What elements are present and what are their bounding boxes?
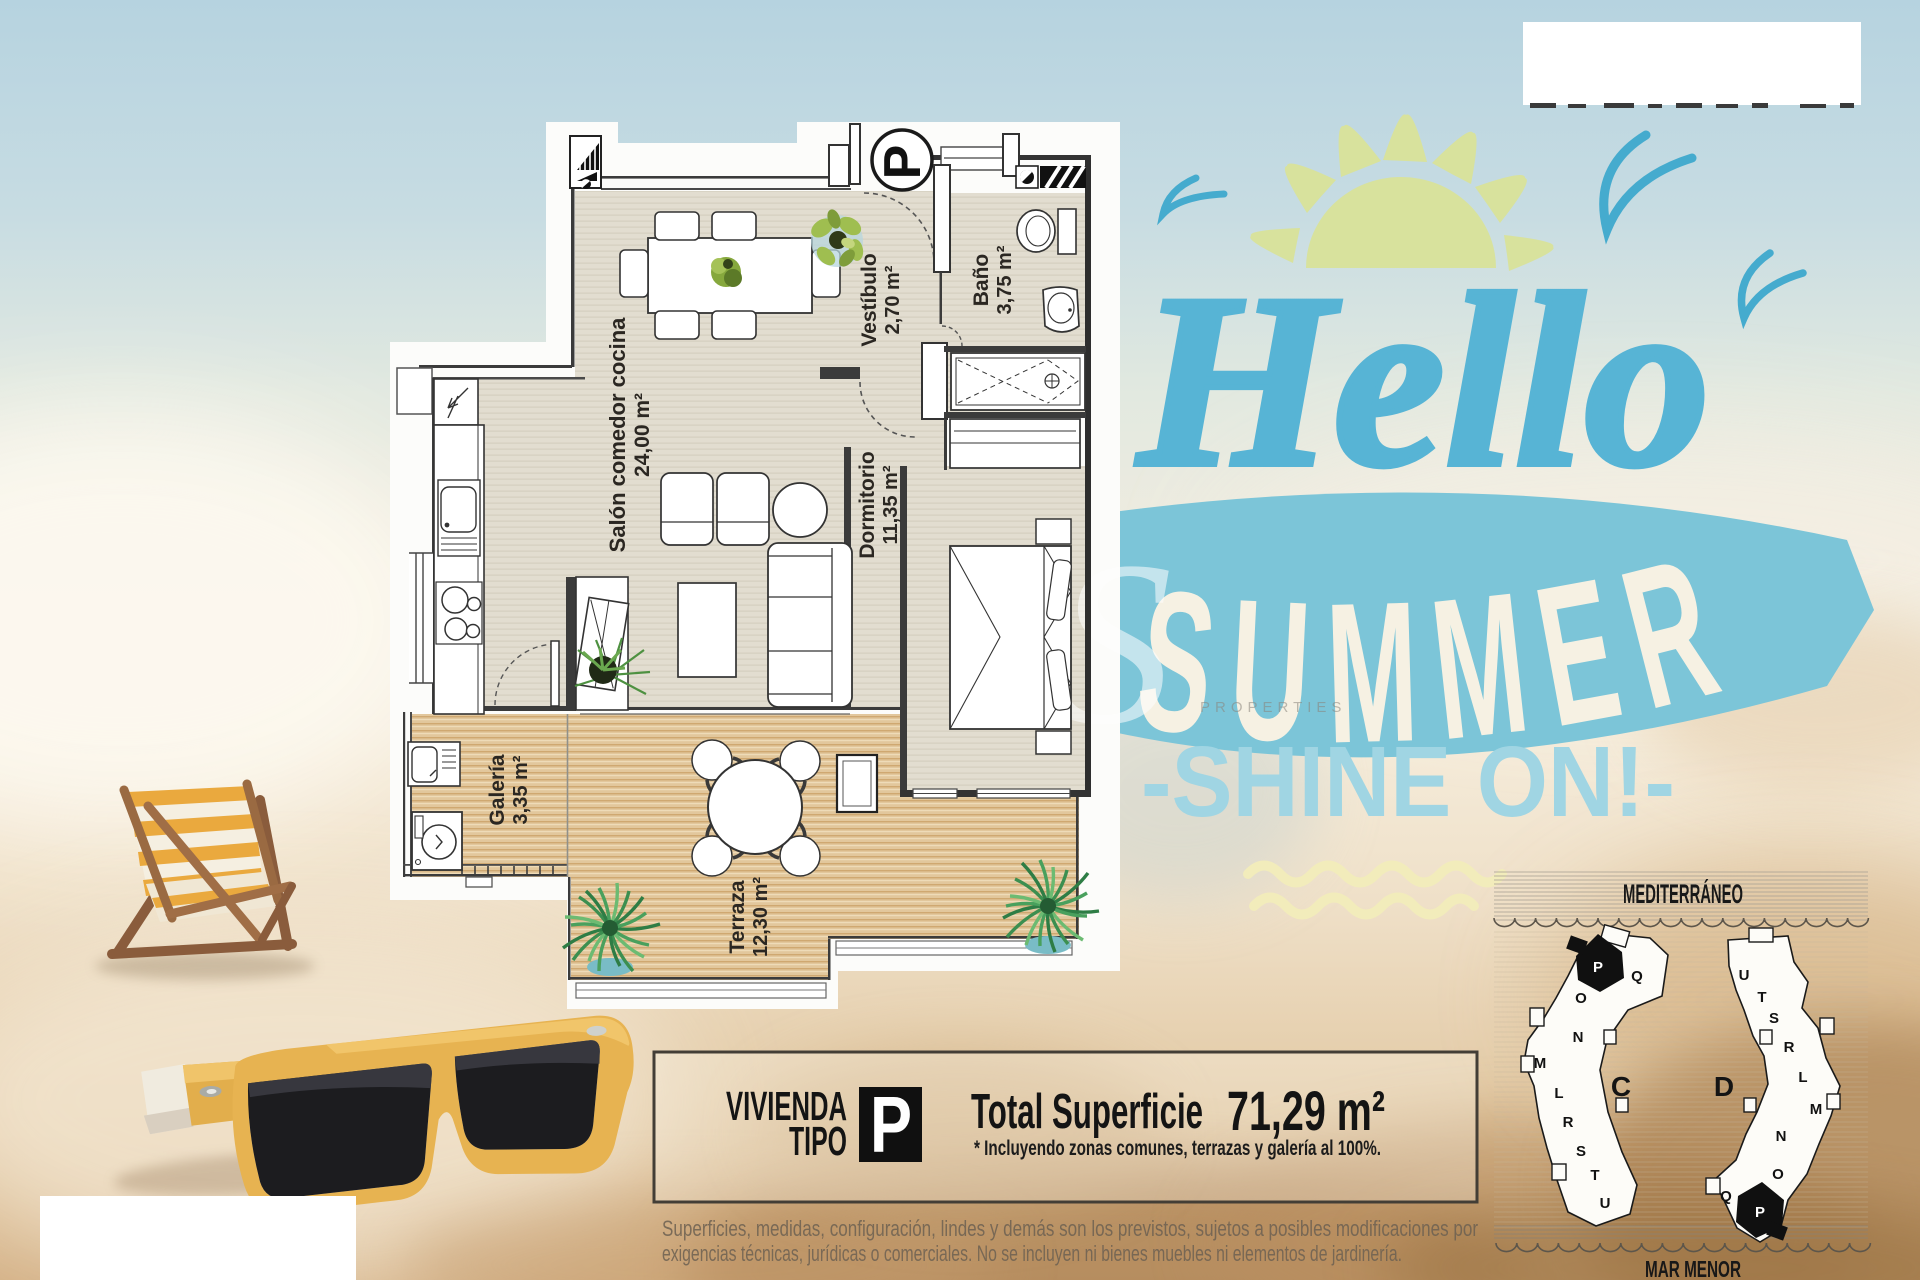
svg-text:Dormitorio: Dormitorio xyxy=(856,451,879,558)
svg-text:exigencias técnicas, jurídicas: exigencias técnicas, jurídicas o comerci… xyxy=(662,1241,1402,1266)
svg-text:S: S xyxy=(1769,1010,1779,1027)
svg-text:* Incluyendo zonas comunes, te: * Incluyendo zonas comunes, terrazas y g… xyxy=(974,1136,1381,1160)
svg-text:Total Superficie: Total Superficie xyxy=(971,1085,1203,1139)
svg-text:N: N xyxy=(1573,1029,1584,1046)
svg-text:O: O xyxy=(1772,1166,1784,1183)
svg-text:3,75 m²: 3,75 m² xyxy=(994,245,1016,314)
svg-text:Terraza: Terraza xyxy=(726,880,749,953)
svg-text:T: T xyxy=(1757,989,1766,1006)
svg-text:R: R xyxy=(1563,1114,1574,1131)
svg-text:P: P xyxy=(874,145,932,180)
svg-text:P: P xyxy=(870,1080,912,1169)
svg-text:PROPERTIES: PROPERTIES xyxy=(1200,699,1346,716)
svg-text:71,29 m²: 71,29 m² xyxy=(1227,1079,1385,1142)
svg-text:P: P xyxy=(1593,959,1603,976)
svg-text:U: U xyxy=(1739,967,1750,984)
svg-text:Q: Q xyxy=(1631,968,1643,985)
svg-text:Baño: Baño xyxy=(970,254,993,307)
svg-text:L: L xyxy=(1798,1069,1807,1086)
svg-text:TIPO: TIPO xyxy=(789,1118,847,1164)
svg-text:N: N xyxy=(1776,1128,1787,1145)
svg-text:S: S xyxy=(1055,513,1173,773)
svg-text:U: U xyxy=(1600,1195,1611,1212)
svg-text:C: C xyxy=(1611,1071,1631,1102)
svg-text:D: D xyxy=(1714,1071,1734,1102)
svg-text:24,00 m²: 24,00 m² xyxy=(631,393,654,477)
svg-text:3,35 m²: 3,35 m² xyxy=(510,755,532,824)
svg-text:M: M xyxy=(1534,1055,1547,1072)
svg-text:2,70 m²: 2,70 m² xyxy=(882,265,904,334)
svg-text:R: R xyxy=(1784,1039,1795,1056)
svg-text:12,30 m²: 12,30 m² xyxy=(750,877,772,957)
svg-text:P: P xyxy=(1755,1204,1765,1221)
svg-text:Hello: Hello xyxy=(1136,243,1710,518)
svg-text:-SHINE ON!-: -SHINE ON!- xyxy=(1141,726,1675,838)
svg-text:M: M xyxy=(1810,1101,1823,1118)
svg-text:MAR MENOR: MAR MENOR xyxy=(1645,1256,1741,1280)
svg-text:S: S xyxy=(1576,1143,1586,1160)
svg-text:O: O xyxy=(1575,990,1587,1007)
svg-text:T: T xyxy=(1590,1167,1599,1184)
svg-text:Q: Q xyxy=(1720,1188,1732,1205)
svg-text:Vestíbulo: Vestíbulo xyxy=(858,253,881,346)
svg-text:11,35 m²: 11,35 m² xyxy=(880,465,902,544)
svg-text:Galería: Galería xyxy=(486,754,509,826)
svg-text:Salón comedor cocina: Salón comedor cocina xyxy=(605,317,630,552)
svg-text:L: L xyxy=(1554,1085,1563,1102)
svg-text:MEDITERRÁNEO: MEDITERRÁNEO xyxy=(1623,878,1743,909)
svg-text:Superficies, medidas, configur: Superficies, medidas, configuración, lin… xyxy=(662,1216,1478,1241)
